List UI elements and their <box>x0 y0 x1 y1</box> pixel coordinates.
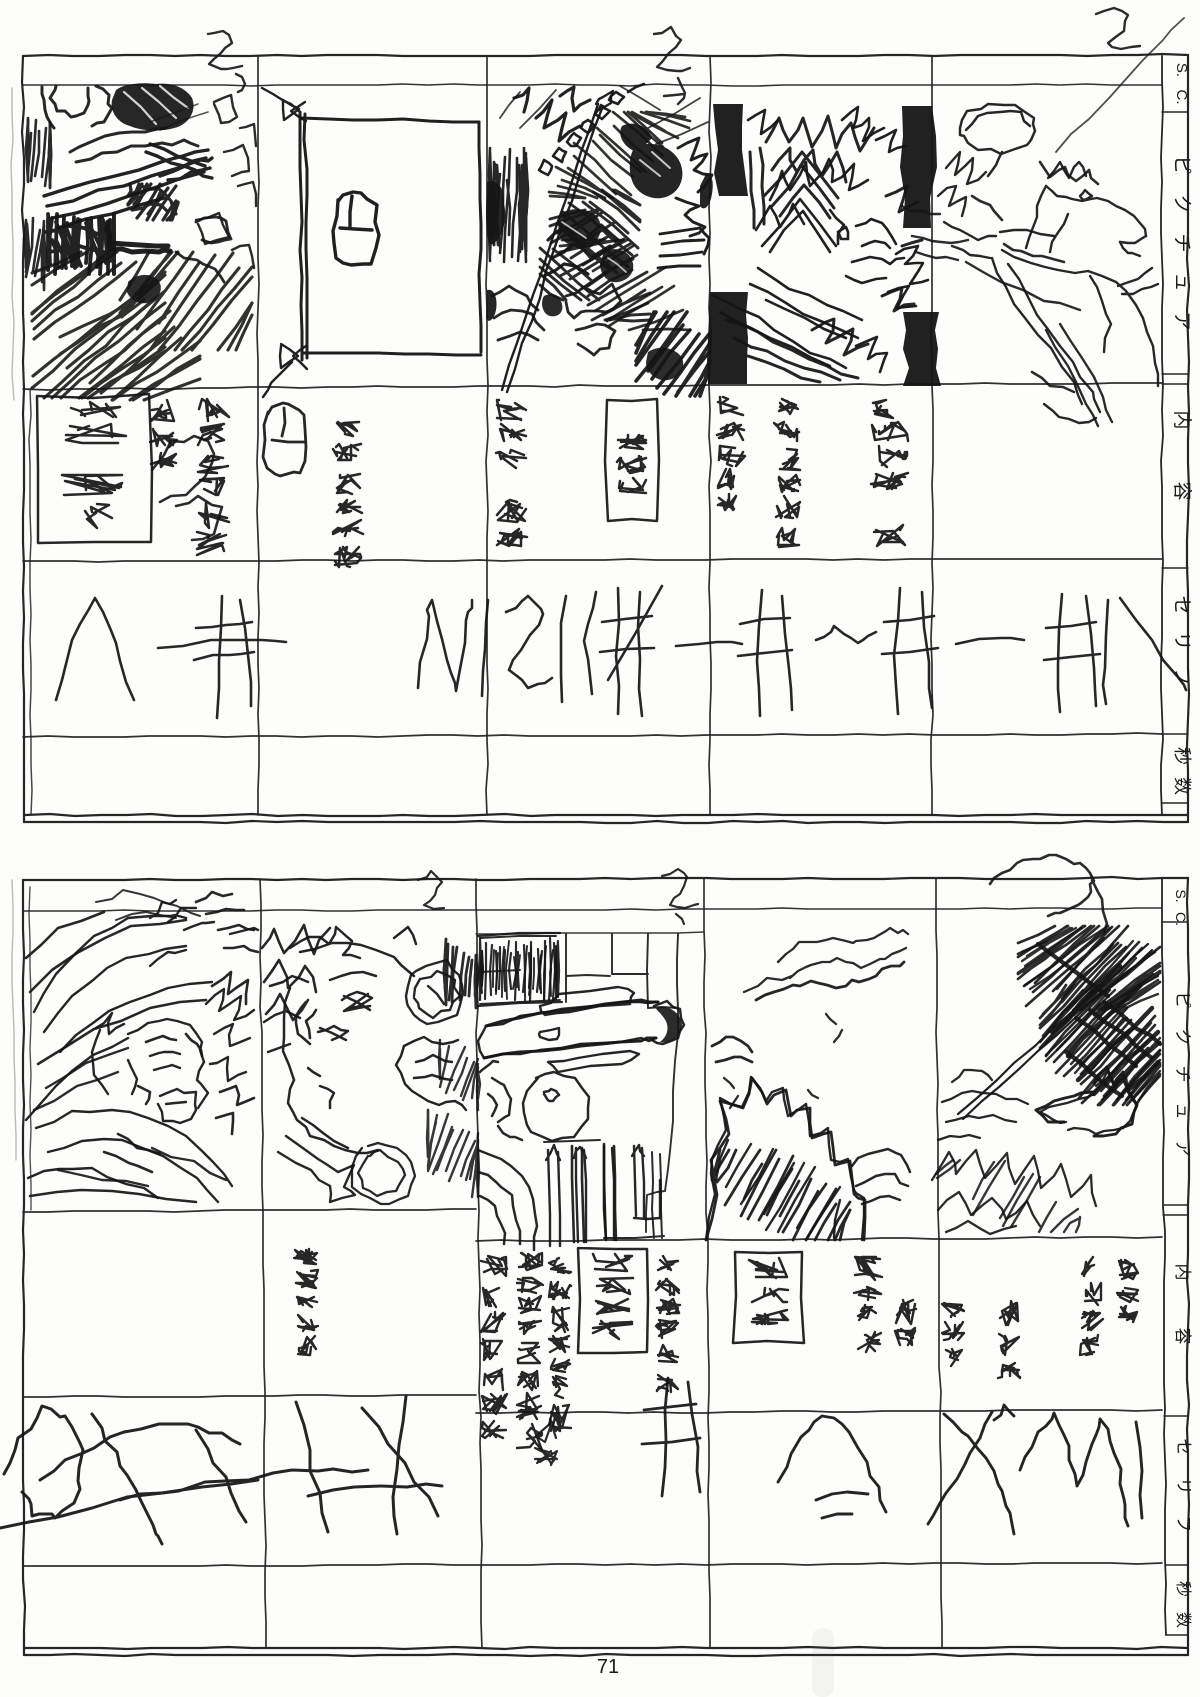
svg-text:容: 容 <box>1173 1328 1192 1345</box>
svg-text:C.: C. <box>1173 912 1189 926</box>
svg-text:71: 71 <box>597 1656 619 1678</box>
svg-text:ュ: ュ <box>1171 272 1192 291</box>
svg-text:チ: チ <box>1171 233 1192 252</box>
svg-text:数: 数 <box>1174 1612 1192 1628</box>
svg-text:ピ: ピ <box>1171 155 1192 174</box>
svg-text:容: 容 <box>1171 481 1193 500</box>
svg-text:秒: 秒 <box>1172 747 1192 765</box>
svg-text:ク: ク <box>1173 1029 1192 1046</box>
svg-text:数: 数 <box>1172 777 1192 795</box>
svg-text:ク: ク <box>1171 194 1193 213</box>
svg-text:秒: 秒 <box>1174 1581 1192 1597</box>
svg-text:セ: セ <box>1171 595 1192 614</box>
svg-text:ア: ア <box>1173 1140 1192 1157</box>
svg-text:ュ: ュ <box>1173 1103 1192 1120</box>
svg-text:ア: ア <box>1171 311 1192 330</box>
svg-text:セ: セ <box>1174 1439 1193 1456</box>
svg-text:チ: チ <box>1173 1066 1192 1083</box>
svg-text:内: 内 <box>1173 1264 1192 1281</box>
svg-text:S.: S. <box>1173 889 1189 902</box>
svg-text:フ: フ <box>1174 1516 1193 1533</box>
svg-text:内: 内 <box>1171 410 1193 429</box>
svg-text:リ: リ <box>1174 1478 1193 1495</box>
svg-text:ピ: ピ <box>1173 992 1192 1009</box>
svg-text:S.: S. <box>1173 63 1190 77</box>
svg-text:C.: C. <box>1173 90 1190 105</box>
svg-text:リ: リ <box>1171 631 1192 650</box>
